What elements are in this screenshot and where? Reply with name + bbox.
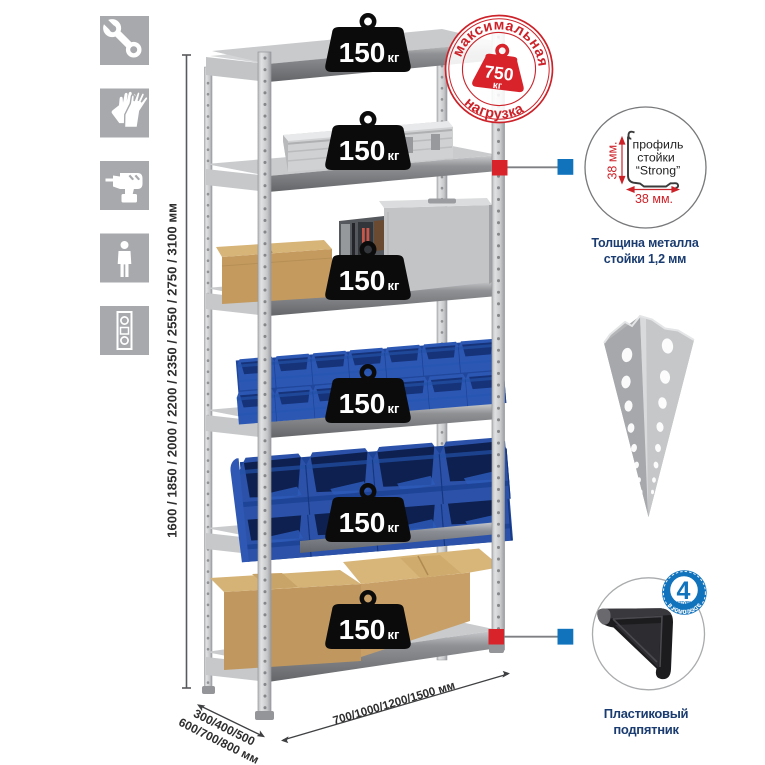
svg-text:Пластиковый: Пластиковый [604,706,689,721]
svg-text:38 мм.: 38 мм. [606,141,620,179]
svg-text:профиль: профиль [633,138,684,152]
svg-text:38 мм.: 38 мм. [635,192,673,206]
svg-text:Толщина металла: Толщина металла [591,236,700,250]
svg-text:кг: кг [492,80,502,92]
svg-text:штуки: штуки [677,600,691,605]
svg-text:1600 / 1850 / 2000 / 2200 / 23: 1600 / 1850 / 2000 / 2200 / 2350 / 2550 … [165,203,180,538]
svg-text:стойки: стойки [637,151,675,165]
svg-text:“Strong”: “Strong” [636,164,680,178]
svg-text:подпятник: подпятник [613,722,679,737]
svg-text:стойки 1,2 мм: стойки 1,2 мм [604,252,686,266]
